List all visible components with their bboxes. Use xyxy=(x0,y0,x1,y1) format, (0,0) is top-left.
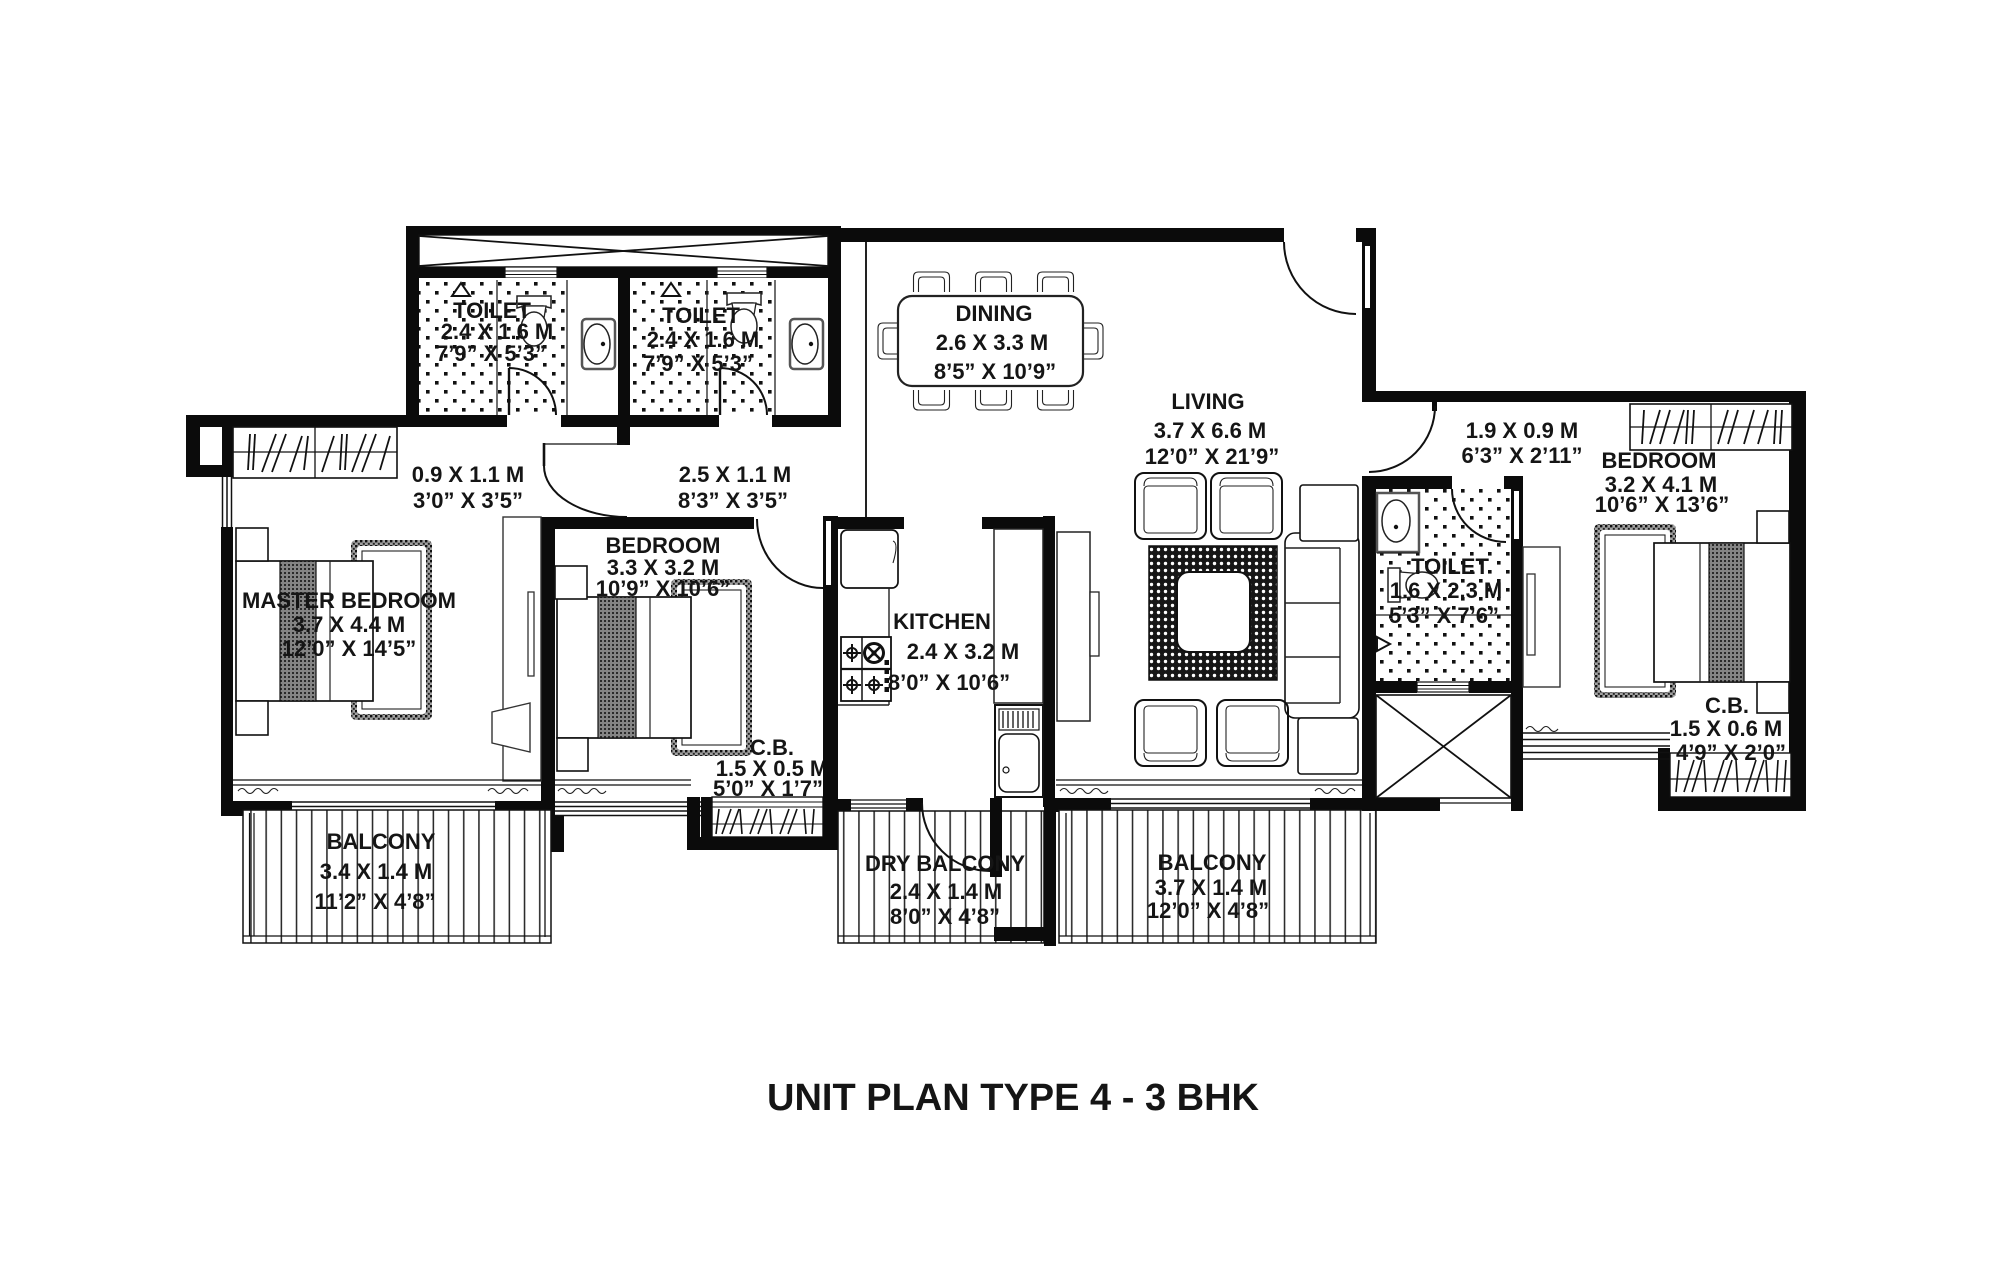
svg-text:3.7 X 4.4 M: 3.7 X 4.4 M xyxy=(293,612,406,637)
svg-text:2.4 X 1.6 M: 2.4 X 1.6 M xyxy=(647,327,760,352)
svg-text:8’0” X 10’6”: 8’0” X 10’6” xyxy=(888,670,1010,695)
svg-text:TOILET: TOILET xyxy=(1411,554,1489,579)
svg-text:6’3” X 2’11”: 6’3” X 2’11” xyxy=(1461,443,1582,468)
svg-text:8’0” X 4’8”: 8’0” X 4’8” xyxy=(890,904,1000,929)
svg-text:UNIT PLAN TYPE 4 - 3 BHK: UNIT PLAN TYPE 4 - 3 BHK xyxy=(767,1077,1259,1119)
svg-text:8’3” X 3’5”: 8’3” X 3’5” xyxy=(678,488,788,513)
svg-text:11’2” X 4’8”: 11’2” X 4’8” xyxy=(314,889,435,914)
svg-text:1.9 X 0.9 M: 1.9 X 0.9 M xyxy=(1466,418,1579,443)
svg-text:TOILET: TOILET xyxy=(662,303,740,328)
svg-text:C.B.: C.B. xyxy=(1705,693,1749,718)
svg-text:3.4 X 1.4 M: 3.4 X 1.4 M xyxy=(320,859,433,884)
svg-text:BEDROOM: BEDROOM xyxy=(1602,448,1717,473)
svg-text:7’9” X 5’3”: 7’9” X 5’3” xyxy=(643,351,753,376)
svg-text:2.4 X 1.4 M: 2.4 X 1.4 M xyxy=(890,879,1003,904)
svg-text:KITCHEN: KITCHEN xyxy=(893,609,991,634)
svg-text:BALCONY: BALCONY xyxy=(1158,850,1267,875)
svg-text:12’0” X 21’9”: 12’0” X 21’9” xyxy=(1145,444,1280,469)
svg-text:DRY BALCONY: DRY BALCONY xyxy=(865,851,1025,876)
svg-text:10’6” X 13’6”: 10’6” X 13’6” xyxy=(1595,492,1730,517)
svg-text:2.5 X 1.1 M: 2.5 X 1.1 M xyxy=(679,462,792,487)
svg-text:10’9” X 10’6”: 10’9” X 10’6” xyxy=(596,576,731,601)
svg-text:DINING: DINING xyxy=(956,301,1033,326)
svg-text:12’0” X 14’5”: 12’0” X 14’5” xyxy=(282,636,417,661)
svg-text:3.7 X 6.6 M: 3.7 X 6.6 M xyxy=(1154,418,1267,443)
svg-text:MASTER BEDROOM: MASTER BEDROOM xyxy=(242,588,456,613)
svg-text:8’5” X 10’9”: 8’5” X 10’9” xyxy=(934,359,1056,384)
svg-text:5’3” X 7’6”: 5’3” X 7’6” xyxy=(1389,603,1499,628)
svg-text:1.6 X 2.3 M: 1.6 X 2.3 M xyxy=(1390,578,1503,603)
svg-text:3.7 X 1.4 M: 3.7 X 1.4 M xyxy=(1155,875,1268,900)
svg-text:5’0” X 1’7”: 5’0” X 1’7” xyxy=(713,776,823,801)
svg-text:BALCONY: BALCONY xyxy=(327,829,436,854)
svg-text:1.5 X 0.6 M: 1.5 X 0.6 M xyxy=(1670,716,1783,741)
svg-text:0.9 X 1.1 M: 0.9 X 1.1 M xyxy=(412,462,525,487)
svg-text:12’0” X 4’8”: 12’0” X 4’8” xyxy=(1147,898,1269,923)
svg-text:3’0” X 3’5”: 3’0” X 3’5” xyxy=(413,488,523,513)
svg-text:4’9” X 2’0”: 4’9” X 2’0” xyxy=(1676,740,1786,765)
svg-text:2.4 X 3.2 M: 2.4 X 3.2 M xyxy=(907,639,1020,664)
svg-text:2.6 X 3.3 M: 2.6 X 3.3 M xyxy=(936,330,1049,355)
svg-text:7’9” X 5’3”: 7’9” X 5’3” xyxy=(436,341,546,366)
svg-text:LIVING: LIVING xyxy=(1171,389,1244,414)
